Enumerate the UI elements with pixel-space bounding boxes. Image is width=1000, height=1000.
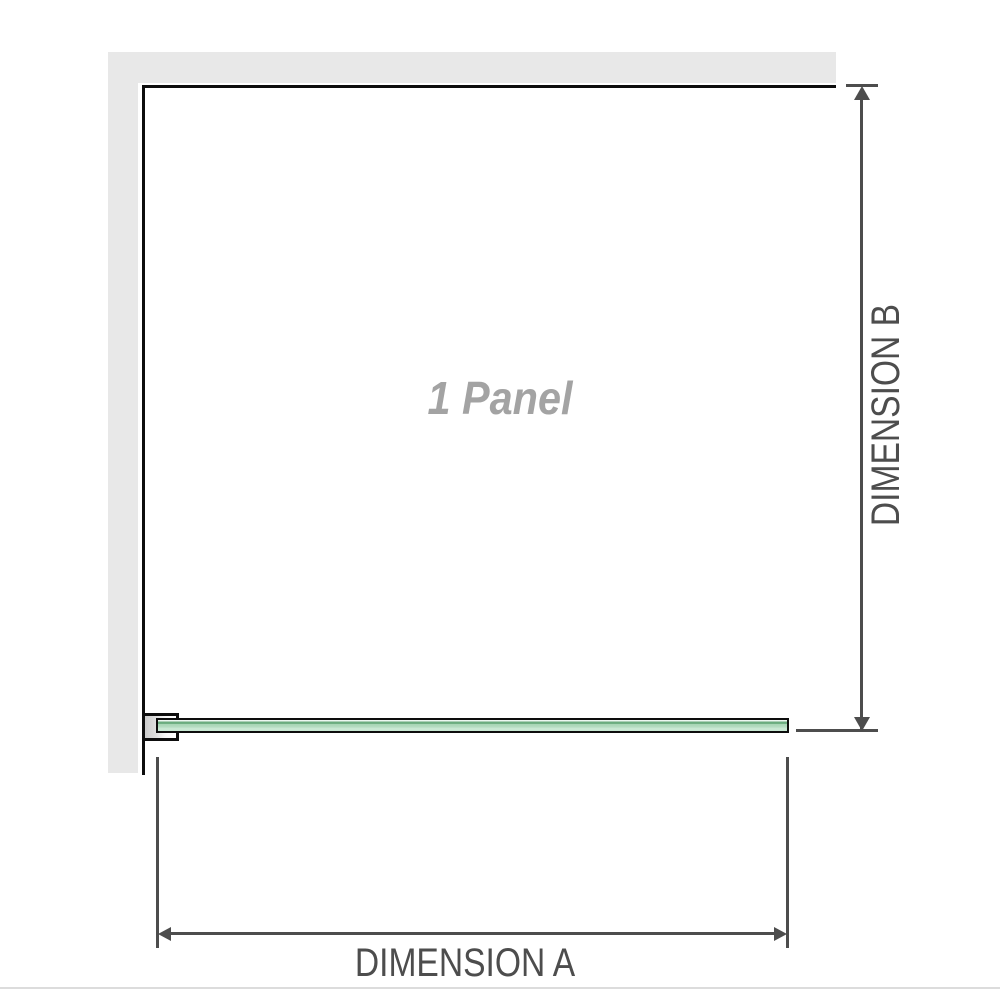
arrow-right-icon xyxy=(774,927,787,941)
bottom-separator-line xyxy=(0,987,1000,989)
dimension-a-left-tick xyxy=(156,757,159,948)
glass-panel-bar xyxy=(156,718,789,733)
panel-left-border xyxy=(142,85,145,775)
dimension-a-label: DIMENSION A xyxy=(318,940,612,986)
wall-left-band xyxy=(108,52,138,773)
panel-top-border xyxy=(142,85,836,88)
arrow-down-icon xyxy=(854,717,870,731)
wall-top-band xyxy=(108,52,836,83)
dimension-b-label: DIMENSION B xyxy=(864,239,908,592)
dimension-a-line xyxy=(165,932,780,935)
dimension-a-right-tick xyxy=(786,757,789,948)
arrow-up-icon xyxy=(854,86,870,100)
panel-count-label: 1 Panel xyxy=(419,370,581,426)
diagram-canvas: 1 Panel DIMENSION B DIMENSION A xyxy=(0,0,1000,1000)
arrow-left-icon xyxy=(158,927,171,941)
